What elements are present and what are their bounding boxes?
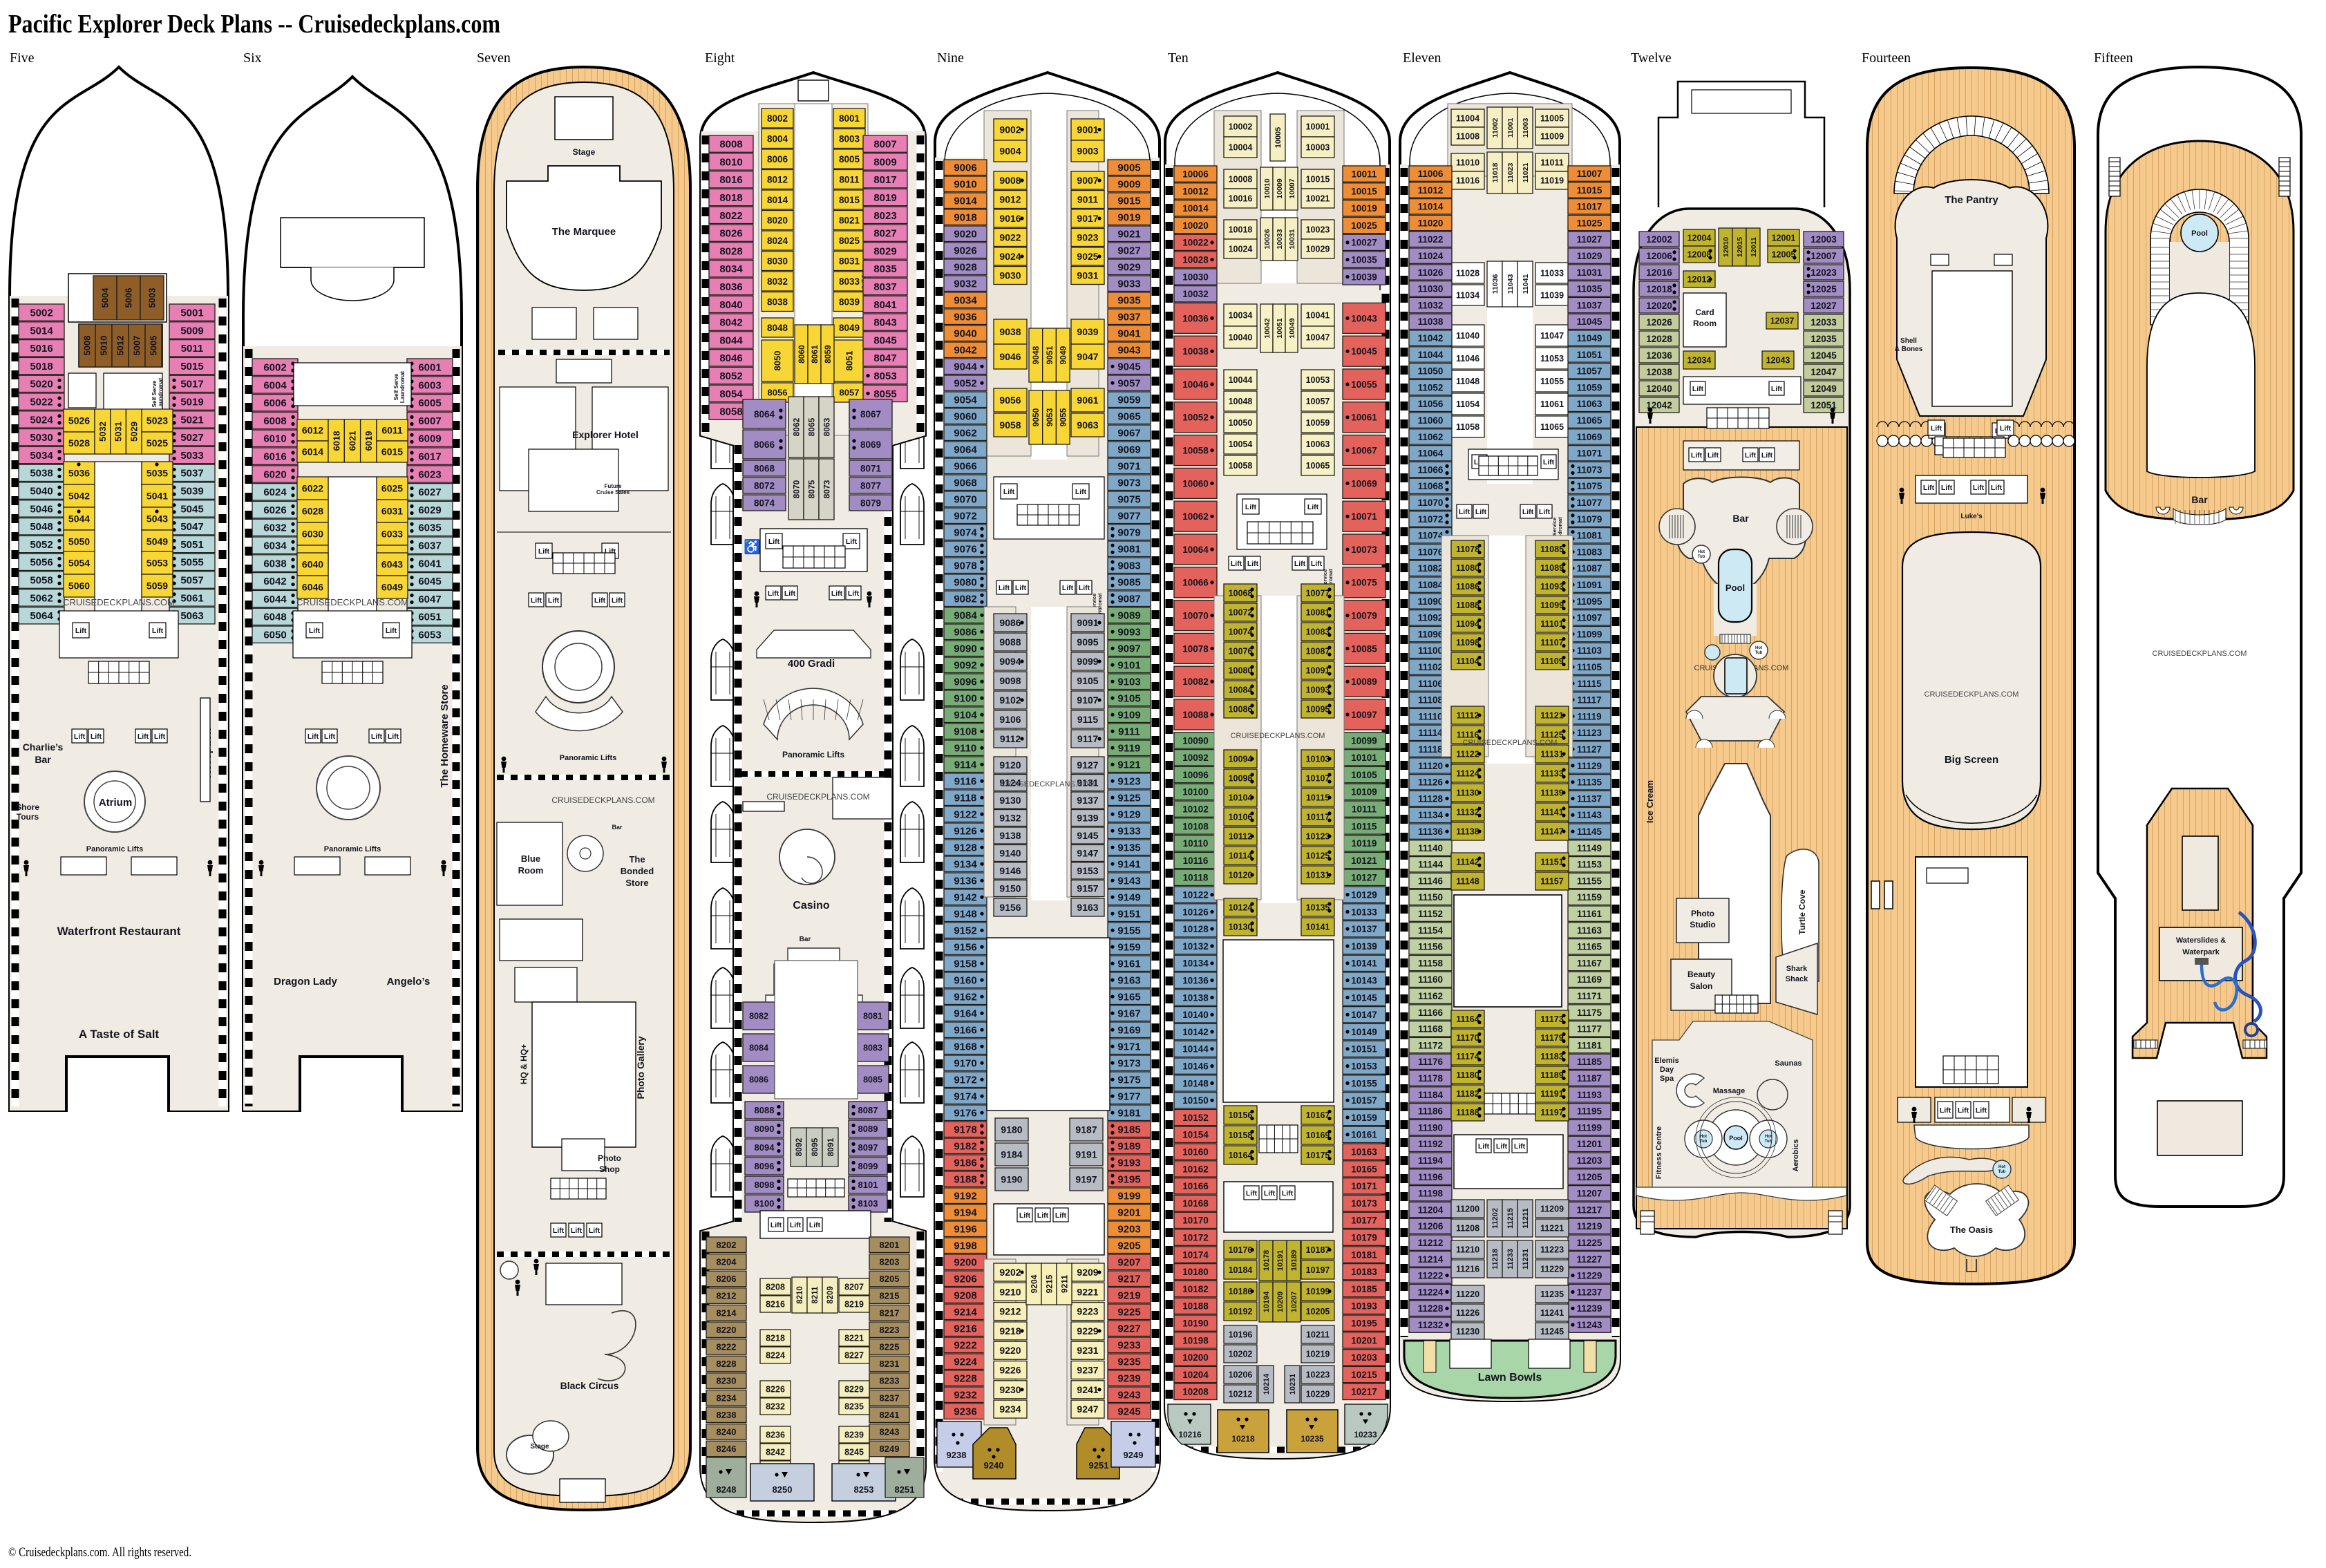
svg-text:9221: 9221	[1077, 1286, 1098, 1297]
svg-text:6033: 6033	[381, 529, 403, 540]
svg-text:9059: 9059	[1117, 395, 1140, 406]
svg-text:10061: 10061	[1351, 413, 1377, 423]
svg-text:10189: 10189	[1290, 1250, 1298, 1272]
svg-text:11197: 11197	[1540, 1108, 1563, 1117]
svg-text:8018: 8018	[719, 192, 742, 204]
svg-text:11135: 11135	[1577, 777, 1602, 788]
svg-text:9172: 9172	[954, 1075, 976, 1086]
svg-text:8092: 8092	[794, 1137, 804, 1156]
svg-text:8040: 8040	[719, 299, 742, 311]
svg-text:5023: 5023	[146, 415, 168, 426]
svg-text:11203: 11203	[1577, 1155, 1602, 1166]
svg-text:9056: 9056	[999, 395, 1021, 406]
svg-text:12033: 12033	[1810, 317, 1837, 328]
svg-text:9216: 9216	[954, 1323, 976, 1335]
svg-text:5032: 5032	[97, 422, 108, 442]
svg-text:10185: 10185	[1351, 1284, 1377, 1294]
svg-text:6041: 6041	[418, 558, 441, 569]
svg-text:9226: 9226	[999, 1365, 1021, 1376]
svg-text:11127: 11127	[1577, 744, 1602, 755]
svg-text:12037: 12037	[1770, 317, 1795, 326]
svg-text:11121: 11121	[1540, 711, 1563, 721]
svg-text:11227: 11227	[1577, 1254, 1602, 1265]
svg-text:10019: 10019	[1351, 203, 1377, 214]
svg-text:11184: 11184	[1418, 1090, 1444, 1100]
svg-text:11195: 11195	[1577, 1106, 1602, 1117]
svg-text:9139: 9139	[1077, 813, 1098, 824]
svg-text:8019: 8019	[873, 192, 896, 204]
svg-text:Dragon Lady: Dragon Lady	[274, 976, 337, 988]
svg-text:10099: 10099	[1351, 735, 1377, 746]
svg-text:9161: 9161	[1117, 958, 1140, 970]
svg-text:9080: 9080	[954, 577, 976, 589]
svg-text:11131: 11131	[1540, 750, 1563, 759]
svg-text:11229: 11229	[1540, 1265, 1564, 1274]
svg-text:11128: 11128	[1418, 793, 1444, 804]
svg-text:12020: 12020	[1646, 301, 1672, 311]
svg-text:10011: 10011	[1352, 169, 1377, 180]
svg-text:11101: 11101	[1540, 619, 1563, 629]
svg-text:10141: 10141	[1306, 923, 1330, 932]
svg-text:5018: 5018	[30, 361, 53, 372]
svg-text:10044: 10044	[1229, 375, 1253, 385]
svg-text:8209: 8209	[826, 1286, 835, 1304]
svg-text:5026: 5026	[68, 415, 90, 426]
svg-text:11226: 11226	[1456, 1308, 1479, 1318]
svg-text:10136: 10136	[1182, 976, 1209, 986]
svg-text:9103: 9103	[1117, 677, 1140, 688]
svg-text:Shark: Shark	[1786, 965, 1808, 973]
svg-text:Saunas: Saunas	[1775, 1059, 1802, 1068]
svg-text:Lift: Lift	[386, 627, 397, 635]
svg-text:8100: 8100	[755, 1198, 775, 1209]
svg-text:10215: 10215	[1351, 1370, 1377, 1380]
svg-text:10146: 10146	[1182, 1061, 1209, 1072]
svg-text:11219: 11219	[1577, 1221, 1602, 1231]
svg-text:10119: 10119	[1352, 838, 1377, 849]
svg-text:6020: 6020	[263, 469, 286, 480]
svg-text:9159: 9159	[1117, 942, 1140, 954]
svg-text:6009: 6009	[418, 433, 441, 445]
svg-text:9104: 9104	[954, 710, 977, 721]
svg-text:10127: 10127	[1351, 873, 1377, 883]
svg-text:Lift: Lift	[1264, 1189, 1276, 1198]
svg-text:8006: 8006	[767, 154, 788, 164]
svg-text:11114: 11114	[1418, 728, 1443, 738]
svg-text:10077: 10077	[1306, 589, 1330, 598]
svg-text:Lift: Lift	[1003, 488, 1015, 496]
svg-text:9125: 9125	[1117, 793, 1140, 804]
svg-text:8212: 8212	[717, 1291, 737, 1301]
svg-text:Ice Cream: Ice Cream	[1645, 780, 1655, 823]
svg-text:10180: 10180	[1182, 1267, 1209, 1277]
svg-text:9251: 9251	[1089, 1460, 1109, 1471]
svg-text:9146: 9146	[999, 865, 1021, 876]
svg-text:Lift: Lift	[809, 1221, 821, 1229]
svg-text:6048: 6048	[263, 612, 286, 623]
svg-text:8061: 8061	[810, 345, 820, 363]
svg-text:Lift: Lift	[768, 589, 779, 598]
svg-text:9241: 9241	[1077, 1384, 1098, 1395]
svg-text:11151: 11151	[1540, 858, 1563, 867]
svg-text:8055: 8055	[873, 388, 896, 400]
svg-text:11143: 11143	[1577, 810, 1602, 820]
svg-text:11124: 11124	[1456, 769, 1479, 779]
svg-text:11224: 11224	[1418, 1287, 1444, 1297]
svg-text:8206: 8206	[717, 1274, 737, 1284]
svg-text:CRUISEDECKPLANS.COM: CRUISEDECKPLANS.COM	[296, 597, 408, 607]
svg-text:9048: 9048	[1031, 346, 1041, 364]
svg-text:10153: 10153	[1351, 1061, 1377, 1072]
svg-text:9116: 9116	[954, 776, 977, 788]
svg-text:9142: 9142	[954, 892, 976, 904]
svg-text:8036: 8036	[719, 281, 742, 293]
svg-text:12034: 12034	[1687, 356, 1712, 366]
svg-text:8099: 8099	[858, 1161, 878, 1171]
svg-text:9235: 9235	[1117, 1357, 1140, 1368]
svg-text:8096: 8096	[755, 1161, 775, 1171]
svg-text:9027: 9027	[1117, 245, 1140, 257]
svg-text:11139: 11139	[1540, 788, 1563, 798]
svg-text:11012: 11012	[1418, 185, 1444, 196]
svg-text:11011: 11011	[1540, 158, 1563, 168]
svg-text:8014: 8014	[767, 195, 788, 205]
svg-text:10218: 10218	[1231, 1434, 1255, 1444]
svg-text:9152: 9152	[954, 925, 976, 937]
svg-text:6047: 6047	[418, 594, 441, 605]
svg-text:9199: 9199	[1117, 1191, 1140, 1202]
svg-text:5046: 5046	[30, 503, 53, 515]
svg-text:Lift: Lift	[371, 733, 383, 741]
svg-text:10026: 10026	[1263, 229, 1271, 249]
svg-text:10193: 10193	[1351, 1301, 1377, 1312]
svg-text:11221: 11221	[1540, 1224, 1564, 1234]
svg-text:Laundromat: Laundromat	[158, 378, 164, 410]
svg-text:9203: 9203	[1117, 1224, 1140, 1236]
svg-text:5045: 5045	[180, 503, 203, 515]
svg-text:10154: 10154	[1182, 1130, 1209, 1140]
svg-text:9171: 9171	[1117, 1041, 1140, 1053]
svg-text:5054: 5054	[68, 558, 90, 569]
svg-text:9236: 9236	[954, 1406, 976, 1418]
svg-text:12008: 12008	[1687, 250, 1712, 260]
svg-text:10020: 10020	[1182, 220, 1209, 231]
svg-text:11027: 11027	[1577, 234, 1602, 245]
svg-text:11092: 11092	[1418, 613, 1444, 623]
svg-text:10031: 10031	[1288, 229, 1296, 249]
svg-text:9009: 9009	[1117, 179, 1140, 191]
svg-text:9115: 9115	[1077, 714, 1099, 725]
svg-text:10002: 10002	[1229, 122, 1253, 132]
svg-text:9014: 9014	[954, 196, 977, 207]
svg-text:10202: 10202	[1229, 1350, 1253, 1359]
svg-text:8216: 8216	[766, 1300, 785, 1310]
svg-text:8039: 8039	[839, 296, 860, 307]
svg-text:Black Circus: Black Circus	[560, 1380, 619, 1391]
svg-text:5034: 5034	[30, 450, 53, 462]
svg-text:10071: 10071	[1351, 511, 1377, 522]
svg-text:8103: 8103	[858, 1198, 878, 1209]
svg-text:10038: 10038	[1182, 346, 1209, 357]
svg-text:9098: 9098	[999, 675, 1021, 686]
svg-text:Lift: Lift	[553, 1227, 565, 1235]
svg-text:9247: 9247	[1077, 1404, 1098, 1415]
svg-text:8241: 8241	[880, 1410, 900, 1420]
svg-text:10192: 10192	[1229, 1307, 1253, 1316]
svg-text:10041: 10041	[1306, 311, 1330, 321]
svg-text:10216: 10216	[1178, 1430, 1202, 1439]
svg-text:Lift: Lift	[75, 627, 87, 635]
svg-text:9177: 9177	[1117, 1091, 1140, 1103]
svg-text:Tours: Tours	[17, 812, 39, 822]
svg-text:8094: 8094	[755, 1142, 775, 1153]
svg-text:11153: 11153	[1577, 860, 1602, 870]
svg-text:8074: 8074	[754, 498, 775, 508]
svg-text:9106: 9106	[999, 714, 1021, 725]
svg-text:11053: 11053	[1540, 354, 1564, 363]
svg-text:9249: 9249	[1124, 1450, 1144, 1460]
svg-text:10182: 10182	[1182, 1284, 1209, 1294]
svg-text:10162: 10162	[1182, 1164, 1209, 1174]
svg-text:9234: 9234	[999, 1404, 1021, 1415]
svg-text:11245: 11245	[1540, 1327, 1564, 1336]
svg-text:Blue: Blue	[521, 853, 540, 864]
svg-text:Twelve: Twelve	[1631, 50, 1672, 66]
svg-text:8219: 8219	[844, 1300, 864, 1310]
svg-text:8001: 8001	[839, 113, 860, 124]
svg-text:8071: 8071	[860, 463, 882, 473]
svg-text:10034: 10034	[1229, 311, 1253, 321]
svg-text:5029: 5029	[129, 422, 139, 442]
svg-text:5015: 5015	[180, 361, 203, 372]
svg-text:8051: 8051	[844, 351, 855, 371]
svg-text:8234: 8234	[717, 1392, 737, 1403]
svg-text:Lift: Lift	[1475, 508, 1487, 516]
svg-text:9057: 9057	[1117, 378, 1140, 390]
svg-text:8215: 8215	[880, 1291, 900, 1301]
svg-text:9017: 9017	[1077, 213, 1098, 224]
svg-text:11023: 11023	[1506, 163, 1515, 183]
svg-text:8082: 8082	[749, 1012, 768, 1021]
svg-text:9192: 9192	[954, 1191, 976, 1202]
svg-text:11181: 11181	[1577, 1040, 1602, 1050]
svg-text:9195: 9195	[1117, 1174, 1140, 1186]
svg-text:9093: 9093	[1117, 627, 1140, 639]
svg-text:Lift: Lift	[1514, 1142, 1526, 1151]
svg-text:9071: 9071	[1117, 461, 1140, 473]
svg-text:12002: 12002	[1646, 234, 1672, 245]
svg-text:10126: 10126	[1182, 907, 1209, 917]
svg-text:10014: 10014	[1182, 203, 1209, 214]
svg-text:10069: 10069	[1351, 478, 1377, 489]
svg-text:5035: 5035	[146, 468, 168, 479]
svg-text:8060: 8060	[797, 345, 806, 363]
svg-text:The Marquee: The Marquee	[552, 226, 616, 238]
svg-text:Photo: Photo	[1691, 909, 1714, 918]
svg-text:8232: 8232	[766, 1402, 785, 1412]
svg-text:9153: 9153	[1077, 865, 1098, 876]
svg-text:8090: 8090	[755, 1124, 775, 1134]
svg-text:9200: 9200	[954, 1257, 976, 1269]
svg-text:8068: 8068	[754, 463, 775, 473]
svg-text:8007: 8007	[873, 139, 896, 151]
svg-text:11193: 11193	[1577, 1090, 1602, 1100]
svg-text:10112: 10112	[1229, 832, 1252, 842]
svg-text:6008: 6008	[263, 415, 286, 427]
svg-text:11091: 11091	[1577, 580, 1602, 590]
svg-text:10048: 10048	[1229, 397, 1253, 406]
svg-text:9193: 9193	[1117, 1158, 1140, 1169]
svg-text:11090: 11090	[1418, 596, 1444, 607]
svg-text:6032: 6032	[263, 522, 286, 534]
svg-text:6031: 6031	[381, 506, 403, 517]
svg-text:9003: 9003	[1077, 146, 1098, 157]
svg-text:5008: 5008	[82, 336, 93, 356]
svg-text:9156: 9156	[999, 902, 1021, 913]
svg-text:9109: 9109	[1117, 710, 1140, 721]
svg-text:Lift: Lift	[1055, 1211, 1067, 1220]
svg-text:5025: 5025	[146, 437, 168, 448]
svg-text:9187: 9187	[1075, 1124, 1097, 1135]
svg-text:Panoramic Lifts: Panoramic Lifts	[782, 750, 844, 759]
svg-text:8046: 8046	[719, 352, 742, 364]
svg-text:6021: 6021	[348, 431, 358, 451]
svg-text:8011: 8011	[839, 174, 860, 185]
svg-text:8098: 8098	[755, 1180, 775, 1190]
svg-text:5041: 5041	[146, 491, 168, 502]
svg-text:8225: 8225	[880, 1342, 900, 1352]
svg-text:Lift: Lift	[1245, 503, 1257, 511]
svg-text:11206: 11206	[1418, 1221, 1444, 1231]
svg-text:11207: 11207	[1577, 1189, 1602, 1199]
svg-text:10197: 10197	[1306, 1265, 1330, 1275]
svg-text:10139: 10139	[1351, 941, 1377, 952]
svg-text:8042: 8042	[719, 317, 742, 329]
svg-text:8067: 8067	[860, 409, 881, 419]
svg-text:Spa: Spa	[1660, 1075, 1674, 1083]
svg-text:11216: 11216	[1456, 1265, 1479, 1274]
svg-text:10033: 10033	[1276, 229, 1284, 249]
svg-text:10059: 10059	[1306, 418, 1330, 428]
svg-text:Lift: Lift	[571, 1227, 583, 1235]
svg-text:11078: 11078	[1456, 545, 1479, 554]
svg-text:8221: 8221	[844, 1334, 864, 1343]
svg-text:9090: 9090	[954, 643, 976, 655]
svg-text:11105: 11105	[1577, 662, 1602, 672]
svg-text:8025: 8025	[839, 236, 860, 246]
svg-text:8021: 8021	[839, 215, 860, 225]
svg-text:8053: 8053	[873, 370, 896, 382]
svg-text:9166: 9166	[954, 1025, 976, 1037]
svg-text:8064: 8064	[754, 409, 775, 419]
svg-text:9155: 9155	[1117, 925, 1140, 937]
svg-text:11134: 11134	[1418, 810, 1444, 820]
svg-text:9082: 9082	[954, 594, 976, 605]
svg-text:6011: 6011	[381, 425, 403, 436]
svg-text:10124: 10124	[1229, 903, 1253, 913]
svg-text:Hot: Hot	[1700, 1135, 1707, 1139]
svg-text:9210: 9210	[999, 1286, 1021, 1297]
svg-text:9101: 9101	[1117, 660, 1140, 672]
svg-text:10148: 10148	[1182, 1078, 1209, 1088]
svg-text:8201: 8201	[880, 1240, 900, 1250]
svg-text:12018: 12018	[1646, 284, 1672, 294]
svg-text:Lift: Lift	[594, 596, 606, 605]
svg-text:9070: 9070	[954, 494, 976, 506]
svg-text:8058: 8058	[719, 406, 742, 418]
svg-text:11118: 11118	[1418, 744, 1443, 755]
svg-text:11007: 11007	[1577, 169, 1602, 179]
svg-text:10004: 10004	[1229, 143, 1253, 153]
svg-text:12047: 12047	[1810, 367, 1837, 377]
svg-text:10116: 10116	[1183, 856, 1209, 866]
svg-text:9066: 9066	[954, 461, 976, 473]
svg-text:5017: 5017	[180, 379, 203, 390]
svg-text:11048: 11048	[1456, 377, 1479, 386]
svg-text:11160: 11160	[1418, 974, 1443, 985]
svg-text:10130: 10130	[1229, 923, 1253, 932]
svg-text:10090: 10090	[1182, 735, 1209, 746]
svg-text:9021: 9021	[1117, 229, 1140, 240]
svg-text:10095: 10095	[1306, 705, 1330, 715]
svg-text:11180: 11180	[1456, 1070, 1479, 1080]
svg-text:11218: 11218	[1491, 1249, 1500, 1269]
svg-text:8081: 8081	[863, 1012, 882, 1021]
svg-text:11036: 11036	[1491, 274, 1500, 294]
svg-text:11038: 11038	[1418, 317, 1444, 327]
svg-text:10093: 10093	[1306, 686, 1330, 695]
svg-text:5058: 5058	[30, 575, 53, 587]
svg-text:10022: 10022	[1182, 238, 1209, 248]
svg-text:9012: 9012	[999, 194, 1021, 205]
svg-text:11082: 11082	[1418, 563, 1444, 574]
svg-text:5038: 5038	[30, 468, 53, 480]
svg-text:9147: 9147	[1077, 848, 1098, 859]
svg-text:9231: 9231	[1077, 1345, 1098, 1356]
svg-text:Bar: Bar	[612, 824, 623, 831]
svg-text:11089: 11089	[1540, 563, 1564, 573]
svg-text:11185: 11185	[1577, 1057, 1602, 1067]
svg-text:5009: 5009	[180, 325, 203, 337]
svg-text:9169: 9169	[1117, 1025, 1140, 1037]
svg-text:8243: 8243	[880, 1427, 900, 1437]
svg-text:10122: 10122	[1182, 890, 1209, 900]
svg-text:11086: 11086	[1456, 582, 1479, 592]
svg-text:8009: 8009	[873, 156, 896, 168]
svg-text:5001: 5001	[180, 308, 203, 319]
svg-text:11059: 11059	[1577, 382, 1602, 393]
svg-text:10200: 10200	[1182, 1352, 1209, 1363]
svg-text:6026: 6026	[263, 504, 286, 516]
svg-text:9229: 9229	[1077, 1325, 1098, 1336]
svg-text:Casino: Casino	[793, 900, 830, 911]
svg-text:Lift: Lift	[138, 733, 149, 741]
svg-text:8085: 8085	[863, 1075, 882, 1085]
svg-text:11040: 11040	[1456, 331, 1479, 341]
svg-text:11174: 11174	[1456, 1052, 1479, 1061]
svg-text:8028: 8028	[719, 245, 742, 257]
svg-text:11021: 11021	[1522, 163, 1530, 183]
svg-text:8072: 8072	[754, 480, 775, 491]
svg-text:9084: 9084	[954, 610, 977, 622]
svg-text:11215: 11215	[1506, 1208, 1515, 1229]
svg-text:10160: 10160	[1182, 1147, 1209, 1158]
svg-text:11210: 11210	[1456, 1245, 1479, 1255]
svg-text:Panoramic Lifts: Panoramic Lifts	[324, 845, 381, 853]
svg-text:Lift: Lift	[324, 733, 336, 741]
svg-text:10040: 10040	[1229, 333, 1253, 343]
svg-text:10084: 10084	[1229, 686, 1253, 695]
